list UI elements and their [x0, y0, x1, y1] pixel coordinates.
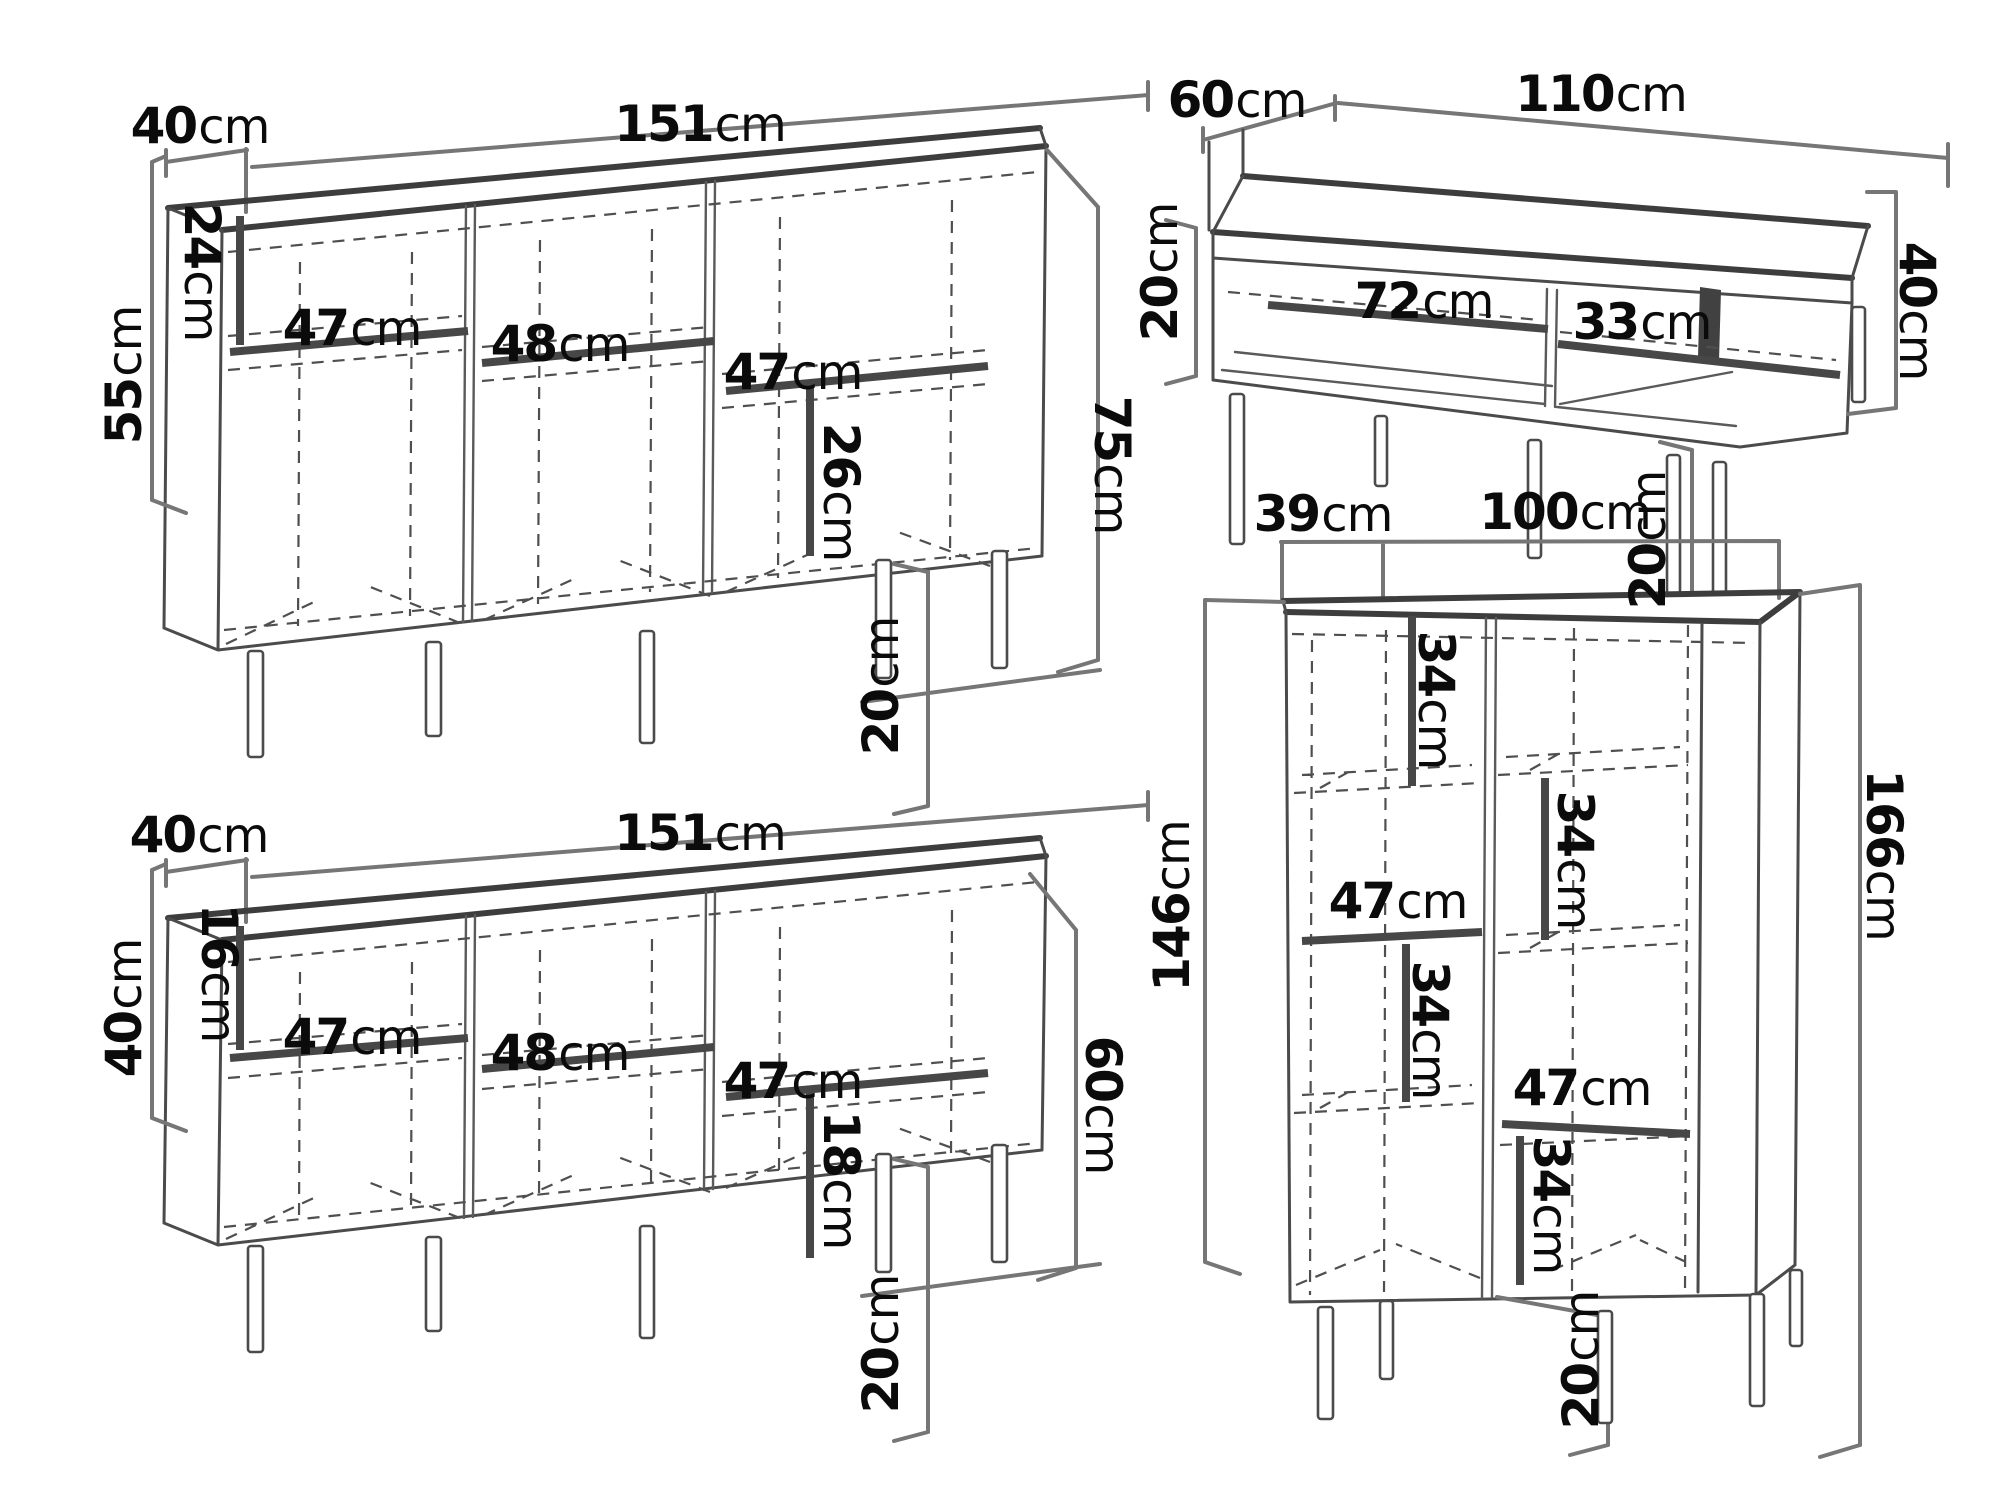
dim-tv-stand-top-section: 16cm [194, 904, 244, 1043]
dim-sideboard-bay2: 48cm [491, 319, 630, 369]
dim-tv-stand-body-height: 40cm [99, 939, 149, 1078]
dim-tv-stand-depth: 40cm [130, 810, 269, 860]
dim-sideboard-top-section: 24cm [177, 203, 227, 342]
dim-coffee-table-width: 110cm [1515, 69, 1687, 119]
dim-highboard-shelf-left: 47cm [1329, 876, 1468, 926]
dim-highboard-cell-c: 34cm [1405, 961, 1455, 1100]
dim-highboard-depth: 39cm [1254, 489, 1393, 539]
sideboard-linework [152, 82, 1148, 814]
dim-tv-stand-bottom-section: 18cm [816, 1111, 866, 1250]
dim-highboard-body-height: 146cm [1147, 820, 1197, 992]
dim-sideboard-bay3: 47cm [724, 347, 863, 397]
dim-tv-stand-bay1: 47cm [283, 1012, 422, 1062]
dim-sideboard-total-height: 75cm [1087, 396, 1137, 535]
dim-coffee-table-total-height: 40cm [1892, 242, 1942, 381]
dim-sideboard-bottom-section: 26cm [816, 423, 866, 562]
dim-highboard-width: 100cm [1479, 487, 1651, 537]
dim-coffee-table-niche-left: 72cm [1355, 276, 1494, 326]
dim-sideboard-width: 151cm [614, 99, 786, 149]
diagram-canvas: 40cm 151cm 55cm 24cm 47cm 48cm 47cm 26cm… [0, 0, 2000, 1499]
dim-coffee-table-niche-right: 33cm [1573, 297, 1712, 347]
dim-sideboard-leg-height: 20cm [856, 617, 906, 756]
dim-tv-stand-width: 151cm [614, 808, 786, 858]
tv-stand-linework [152, 792, 1148, 1441]
dim-coffee-table-depth: 60cm [1168, 75, 1307, 125]
dim-sideboard-body-height: 55cm [99, 306, 149, 445]
linework-layer [0, 0, 2000, 1499]
dim-highboard-shelf-right: 47cm [1513, 1063, 1652, 1113]
dim-highboard-cell-a: 34cm [1411, 631, 1461, 770]
dim-tv-stand-leg-height: 20cm [856, 1275, 906, 1414]
dim-highboard-cell-d: 34cm [1526, 1136, 1576, 1275]
dim-coffee-table-shelf-height: 20cm [1135, 203, 1185, 342]
dim-highboard-leg-height: 20cm [1556, 1291, 1606, 1430]
dim-tv-stand-total-height: 60cm [1078, 1036, 1128, 1175]
dim-sideboard-bay1: 47cm [283, 303, 422, 353]
dim-highboard-cell-b: 34cm [1550, 791, 1600, 930]
dim-highboard-total-height: 166cm [1859, 769, 1909, 941]
dim-sideboard-depth: 40cm [131, 101, 270, 151]
highboard-linework [1205, 541, 1860, 1457]
dim-tv-stand-bay3: 47cm [724, 1056, 863, 1106]
dim-tv-stand-bay2: 48cm [491, 1028, 630, 1078]
